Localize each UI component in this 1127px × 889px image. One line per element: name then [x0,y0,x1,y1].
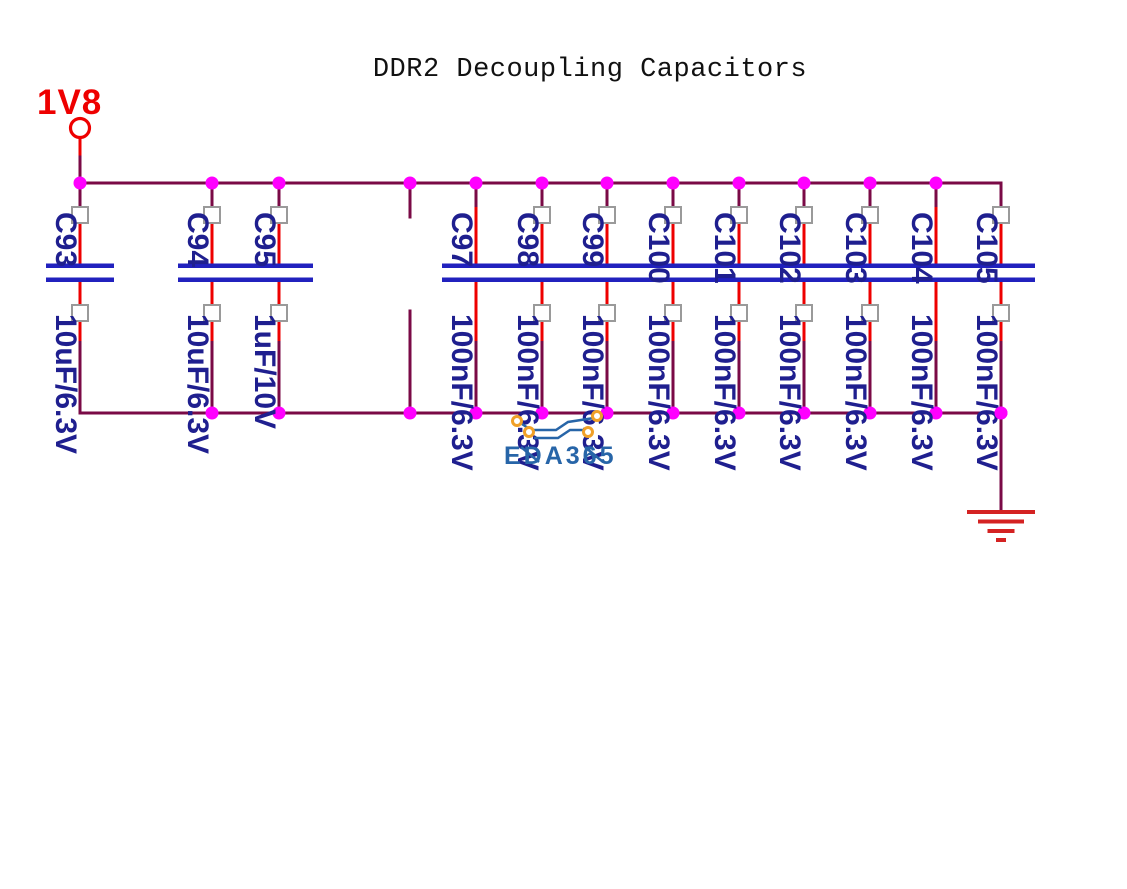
cap-ref-label: C101 [708,212,741,284]
cap-ref-label: C99 [576,212,609,267]
cap-ref-label: C95 [248,212,281,267]
cap-value-label: 100nF/6.3V [839,314,872,471]
junction-dot [864,177,877,190]
capacitor-C102[interactable]: C102100nF/6.3V [770,177,838,471]
cap-ref-label: C102 [773,212,806,284]
capacitor-C99[interactable]: C99100nF/6.3V [573,177,641,471]
power-port-1v8[interactable] [71,119,90,184]
cap-ref-label: C98 [511,212,544,267]
junction-dot [470,177,483,190]
cap-value-label: 100nF/6.3V [773,314,806,471]
capacitor-plate-bottom [245,278,313,283]
junction-dot [601,177,614,190]
cap-ref-label: C100 [642,212,675,284]
watermark-pad-icon [593,412,602,421]
junction-dot [995,407,1008,420]
power-net-label[interactable]: 1V8 [37,85,102,120]
capacitor-C101[interactable]: C101100nF/6.3V [705,177,773,471]
junction-dot [273,177,286,190]
watermark-text: EDA365 [504,443,617,471]
junction-dot [930,177,943,190]
cap-value-label: 100nF/6.3V [445,314,478,471]
capacitor-C97[interactable]: C97100nF/6.3V [442,177,510,471]
unpopulated-stub [404,177,417,420]
junction-dot [667,177,680,190]
junction-dot [733,177,746,190]
junction-dot [74,177,87,190]
capacitor-C103[interactable]: C103100nF/6.3V [836,177,904,471]
capacitor-C100[interactable]: C100100nF/6.3V [639,177,707,471]
schematic-canvas: DDR2 Decoupling Capacitors C9310uF/6.3VC… [0,0,1127,889]
cap-ref-label: C93 [49,212,82,267]
watermark-pad-icon [525,428,534,437]
capacitor-plate-bottom [442,278,510,283]
watermark-pad-icon [513,417,522,426]
junction-dot [536,177,549,190]
capacitor-plate-bottom [573,278,641,283]
cap-value-label: 10uF/6.3V [49,314,82,454]
capacitor-plate-bottom [508,278,576,283]
cap-ref-label: C105 [970,212,1003,284]
capacitor-plate-bottom [178,278,246,283]
junction-dot [404,177,417,190]
cap-value-label: 100nF/6.3V [708,314,741,471]
cap-value-label: 100nF/6.3V [642,314,675,471]
capacitor-C104[interactable]: C104100nF/6.3V [902,177,970,471]
watermark-pad-icon [584,428,593,437]
junction-dot [404,407,417,420]
cap-value-label: 1uF/10V [248,314,281,429]
cap-ref-label: C94 [181,212,214,267]
cap-value-label: 100nF/6.3V [905,314,938,471]
cap-value-label: 100nF/6.3V [970,314,1003,471]
capacitor-C95[interactable]: C951uF/10V [245,177,313,430]
cap-ref-label: C103 [839,212,872,284]
cap-ref-label: C97 [445,212,478,267]
junction-dot [206,177,219,190]
cap-value-label: 10uF/6.3V [181,314,214,454]
junction-dot [798,177,811,190]
cap-ref-label: C104 [905,212,938,284]
capacitor-plate-bottom [46,278,114,283]
